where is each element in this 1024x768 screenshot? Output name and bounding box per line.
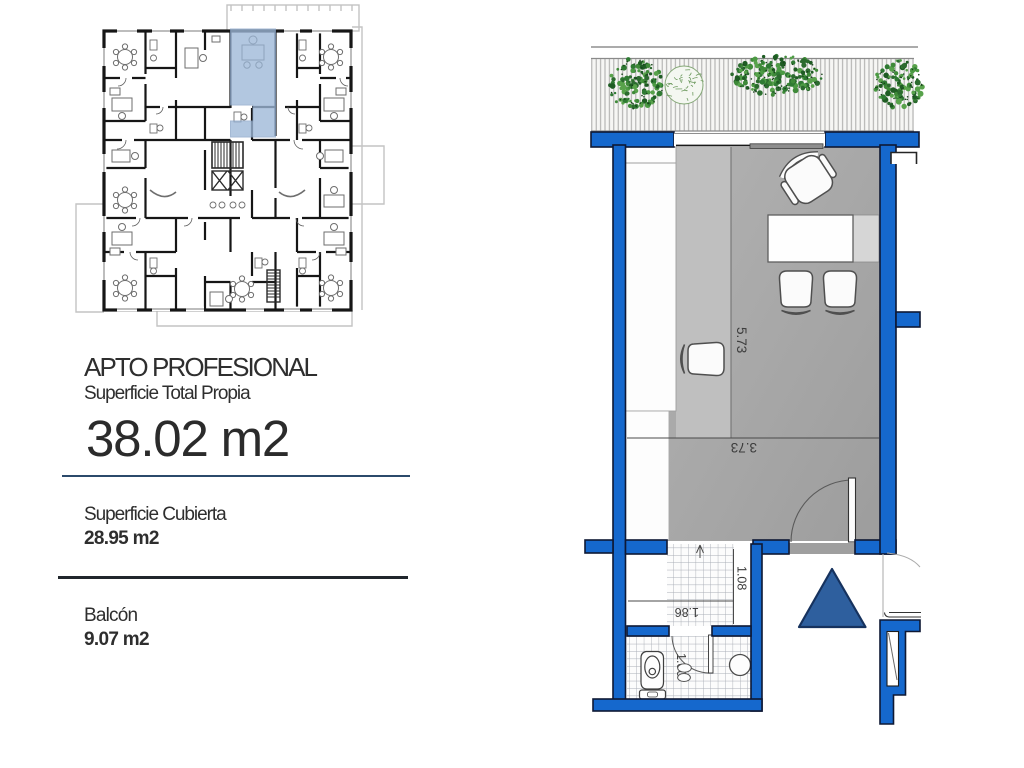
svg-text:3.73: 3.73 bbox=[731, 440, 757, 455]
svg-text:1.08: 1.08 bbox=[735, 566, 749, 590]
svg-text:5.73: 5.73 bbox=[734, 327, 749, 353]
svg-text:1.86: 1.86 bbox=[675, 605, 699, 619]
